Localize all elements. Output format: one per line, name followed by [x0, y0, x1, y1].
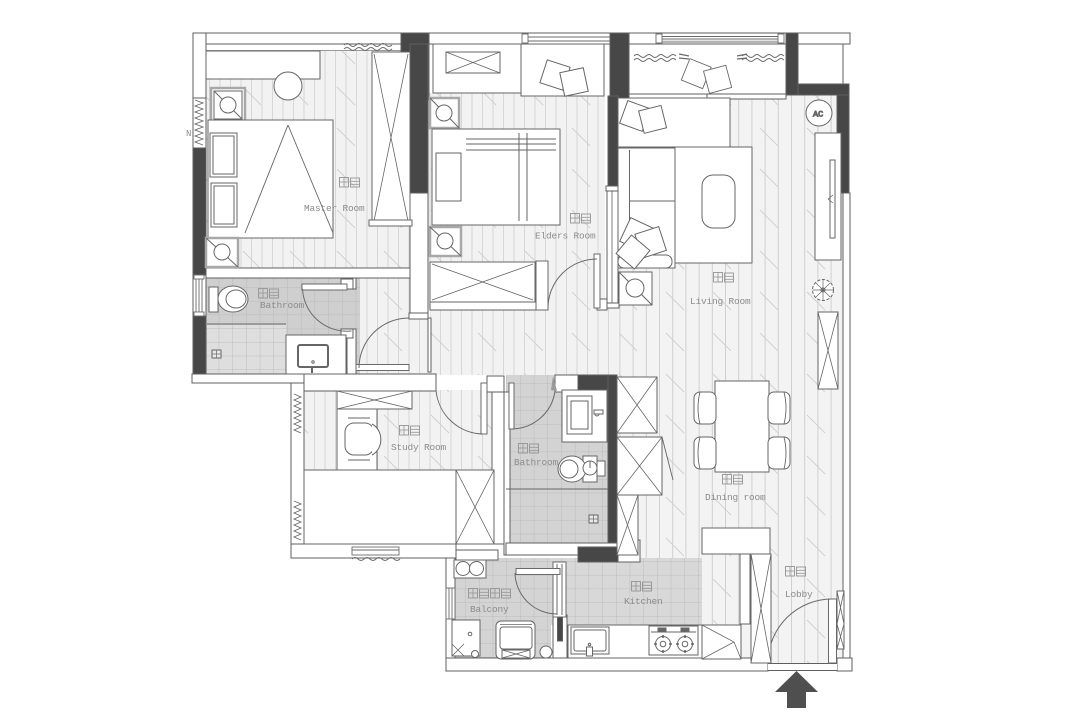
svg-text:Balcony: Balcony — [470, 604, 509, 615]
svg-text:Kitchen: Kitchen — [624, 596, 663, 607]
svg-text:Living Room: Living Room — [690, 296, 751, 307]
svg-text:Study Room: Study Room — [391, 442, 447, 453]
svg-text:Dining room: Dining room — [705, 492, 766, 503]
svg-text:Lobby: Lobby — [785, 589, 813, 600]
svg-text:Master Room: Master Room — [304, 203, 365, 214]
svg-text:Bathroom: Bathroom — [514, 457, 559, 468]
svg-text:Bathroom: Bathroom — [260, 300, 305, 311]
svg-text:N: N — [186, 129, 191, 139]
svg-text:AC: AC — [813, 110, 823, 120]
svg-text:Elders Room: Elders Room — [535, 231, 596, 242]
